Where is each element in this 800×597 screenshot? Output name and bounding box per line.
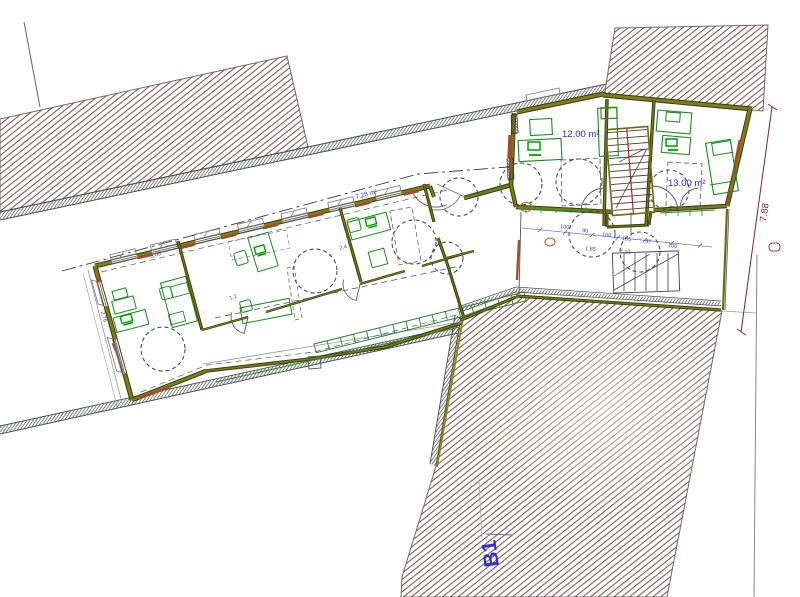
svg-text:105: 105 (622, 236, 632, 243)
svg-text:100: 100 (560, 224, 570, 231)
svg-text:100: 100 (668, 243, 678, 250)
svg-text:1.31: 1.31 (620, 249, 631, 256)
svg-text:12.00 m²: 12.00 m² (562, 129, 600, 140)
svg-text:100: 100 (602, 232, 612, 239)
svg-text:90: 90 (582, 228, 589, 235)
svg-text:B1: B1 (477, 538, 504, 568)
svg-text:97: 97 (645, 239, 652, 246)
svg-text:13.00 m²: 13.00 m² (668, 178, 706, 189)
svg-text:1.85: 1.85 (585, 246, 596, 253)
